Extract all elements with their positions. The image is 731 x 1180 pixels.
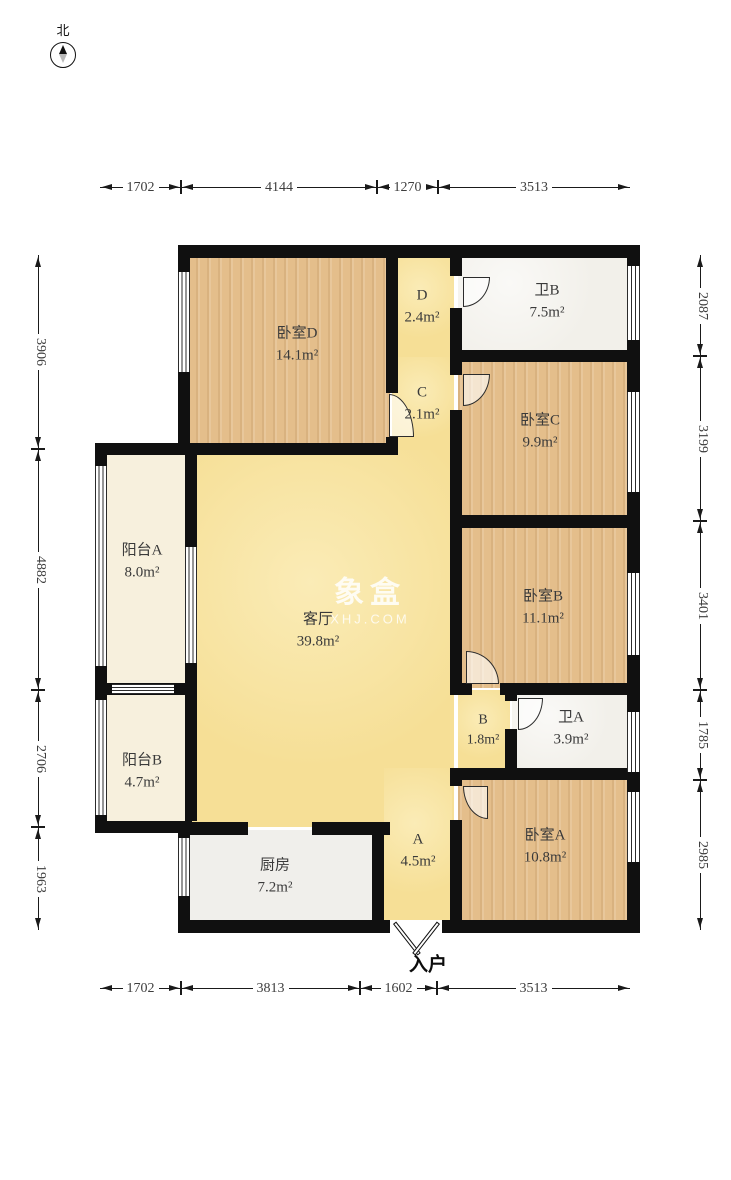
- room-area: 9.9m²: [520, 432, 560, 454]
- dim-tick: [180, 180, 182, 194]
- label-balcony-b: 阳台B 4.7m²: [122, 750, 162, 794]
- dim-tick: [31, 689, 45, 691]
- watermark-subtitle: XHJ.COM: [330, 612, 410, 627]
- wall-bottom-right: [442, 920, 640, 933]
- wall-top: [178, 245, 640, 258]
- room-name: 阳台B: [122, 750, 162, 772]
- dim-tick: [359, 981, 361, 995]
- dim-tick: [437, 180, 439, 194]
- dim-bottom-1: 1702: [100, 988, 181, 989]
- wall-center-6: [450, 820, 462, 933]
- entry-label: 入户: [409, 950, 447, 977]
- dim-top-1: 1702: [100, 187, 181, 188]
- wall-center-4: [450, 528, 462, 695]
- room-name: C: [405, 382, 440, 404]
- room-area: 11.1m²: [522, 608, 564, 630]
- window-balcony-a-icon: [95, 466, 107, 666]
- compass-north-label: 北: [40, 20, 86, 39]
- label-balcony-a: 阳台A 8.0m²: [122, 540, 163, 584]
- dim-tick: [31, 448, 45, 450]
- wall-bedroom-c-bottom: [450, 515, 640, 528]
- room-name: 卫B: [530, 280, 565, 302]
- dim-tick: [31, 826, 45, 828]
- label-hall-c: C 2.1m²: [405, 382, 440, 426]
- dim-value: 1602: [381, 981, 417, 997]
- wall-center-1: [450, 257, 462, 276]
- watermark: 象盒 XHJ.COM: [330, 568, 410, 627]
- label-hall-d: D 2.4m²: [405, 285, 440, 329]
- wall-balcony-a-inner-upper: [185, 455, 197, 547]
- dim-right-2: 3199: [700, 356, 701, 521]
- dim-bottom-2: 3813: [181, 988, 360, 989]
- dim-value: 4882: [32, 552, 48, 588]
- window-balcony-divider-icon: [112, 684, 174, 694]
- dim-right-3: 3401: [700, 521, 701, 690]
- dim-tick: [693, 520, 707, 522]
- room-area: 7.5m²: [530, 302, 565, 324]
- compass-icon: [50, 42, 76, 68]
- room-area: 4.7m²: [122, 772, 162, 794]
- room-area: 4.5m²: [401, 851, 436, 873]
- sliding-door-balcony-a-icon: [185, 547, 197, 663]
- room-name: 阳台A: [122, 540, 163, 562]
- dim-tick: [436, 981, 438, 995]
- wall-bedroom-b-bottom-b: [500, 683, 640, 695]
- room-area: 10.8m²: [524, 847, 566, 869]
- window-bedroom-c-icon: [627, 392, 640, 492]
- label-bedroom-a: 卧室A 10.8m²: [524, 825, 566, 869]
- window-bath-b-icon: [627, 266, 640, 340]
- wall-center-5: [450, 768, 462, 786]
- dim-value: 3199: [694, 421, 710, 457]
- compass-needle-north: [59, 45, 67, 54]
- dim-left-2: 4882: [38, 449, 39, 690]
- room-name: 卧室A: [524, 825, 566, 847]
- room-name: 卧室B: [522, 586, 564, 608]
- dim-tick: [693, 779, 707, 781]
- label-bedroom-c: 卧室C 9.9m²: [520, 410, 560, 454]
- room-name: 卫A: [554, 707, 589, 729]
- room-name: 厨房: [258, 855, 293, 877]
- room-area: 1.8m²: [467, 731, 500, 751]
- wall-bath-a-divider: [505, 729, 517, 768]
- label-bedroom-b: 卧室B 11.1m²: [522, 586, 564, 630]
- dim-tick: [693, 355, 707, 357]
- dim-top-3: 1270: [377, 187, 438, 188]
- room-area: 2.4m²: [405, 307, 440, 329]
- dim-right-4: 1785: [700, 690, 701, 780]
- dim-top-4: 3513: [438, 187, 630, 188]
- dim-value: 4144: [261, 180, 297, 196]
- label-bedroom-d: 卧室D 14.1m²: [276, 323, 318, 367]
- wall-bedroom-d-right-lower: [386, 437, 398, 455]
- compass-needle-south: [59, 54, 67, 63]
- room-name: 卧室C: [520, 410, 560, 432]
- dim-value: 1702: [123, 981, 159, 997]
- wall-bedroom-d-right-upper: [386, 257, 398, 393]
- dim-value: 2087: [694, 288, 710, 324]
- wall-balcony-b-inner: [185, 695, 197, 821]
- dim-value: 2985: [694, 837, 710, 873]
- label-bath-b: 卫B 7.5m²: [530, 280, 565, 324]
- dim-value: 3813: [253, 981, 289, 997]
- dim-value: 1963: [32, 861, 48, 897]
- dim-right-1: 2087: [700, 255, 701, 356]
- room-area: 14.1m²: [276, 345, 318, 367]
- dim-left-3: 2706: [38, 690, 39, 827]
- wall-bedroom-a-top: [462, 768, 640, 780]
- label-hall-a: A 4.5m²: [401, 829, 436, 873]
- dim-bottom-4: 3513: [437, 988, 630, 989]
- dim-tick: [376, 180, 378, 194]
- room-name: D: [405, 285, 440, 307]
- floor-plan-page: 北: [0, 0, 731, 1180]
- dim-top-2: 4144: [181, 187, 377, 188]
- window-bedroom-b-icon: [627, 573, 640, 655]
- label-hall-b: B 1.8m²: [467, 711, 500, 752]
- watermark-title: 象盒: [330, 568, 410, 612]
- dim-left-1: 3906: [38, 255, 39, 449]
- room-area: 7.2m²: [258, 877, 293, 899]
- dim-left-4: 1963: [38, 827, 39, 930]
- dim-value: 1270: [390, 180, 426, 196]
- room-name: 卧室D: [276, 323, 318, 345]
- dim-tick: [180, 981, 182, 995]
- window-bath-a-icon: [627, 712, 640, 772]
- dim-value: 2706: [32, 741, 48, 777]
- wall-balcony-a-inner-lower: [185, 663, 197, 695]
- label-kitchen: 厨房 7.2m²: [258, 855, 293, 899]
- window-balcony-b-icon: [95, 700, 107, 815]
- wall-center-2: [450, 308, 462, 375]
- wall-kitchen-right: [372, 822, 384, 933]
- window-bedroom-a-icon: [627, 792, 640, 862]
- dim-right-5: 2985: [700, 780, 701, 930]
- room-area: 8.0m²: [122, 562, 163, 584]
- compass: 北: [40, 20, 86, 82]
- wall-bath-b-bottom: [450, 350, 640, 362]
- room-area: 3.9m²: [554, 729, 589, 751]
- wall-center-3: [450, 410, 462, 528]
- label-bath-a: 卫A 3.9m²: [554, 707, 589, 751]
- wall-kitchen-top-a: [190, 822, 248, 835]
- room-name: B: [467, 711, 500, 731]
- window-kitchen-icon: [178, 838, 190, 896]
- dim-value: 3513: [516, 981, 552, 997]
- room-name: A: [401, 829, 436, 851]
- room-area: 39.8m²: [297, 631, 339, 653]
- dim-value: 1785: [694, 717, 710, 753]
- dim-value: 1702: [123, 180, 159, 196]
- dim-tick: [693, 689, 707, 691]
- room-area: 2.1m²: [405, 404, 440, 426]
- wall-bedroom-b-bottom-a: [450, 683, 472, 695]
- wall-bath-a-divider-stub: [505, 695, 517, 701]
- dim-value: 3401: [694, 588, 710, 624]
- dim-bottom-3: 1602: [360, 988, 437, 989]
- wall-bottom-left: [178, 920, 390, 933]
- dim-value: 3906: [32, 334, 48, 370]
- wall-bedroom-d-bottom: [95, 443, 398, 455]
- window-bedroom-d-icon: [178, 272, 190, 372]
- dim-value: 3513: [516, 180, 552, 196]
